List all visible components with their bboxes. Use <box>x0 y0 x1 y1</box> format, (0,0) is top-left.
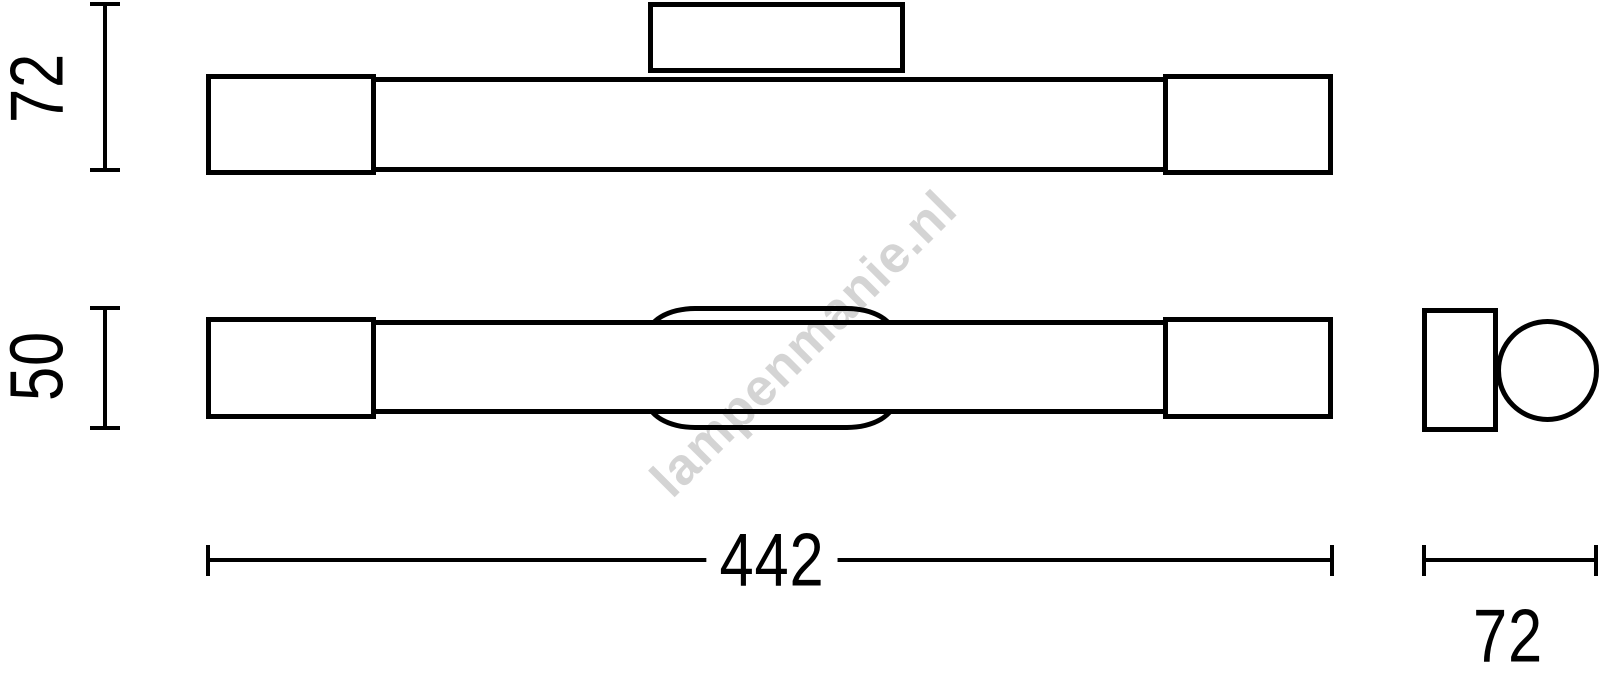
dim-tick-total-height-top <box>90 2 120 6</box>
dimension-drawing: 72 50 442 72 lampenmanie.nl <box>0 0 1600 689</box>
front-view-right-endcap <box>1163 317 1333 419</box>
side-view-cylinder <box>1496 319 1599 422</box>
dim-tick-depth-left <box>1422 545 1426 576</box>
dim-line-depth <box>1422 558 1598 562</box>
dim-label-total-width: 442 <box>706 519 837 602</box>
dim-line-total-height <box>103 2 107 172</box>
top-view-body <box>374 77 1171 172</box>
top-view-left-endcap <box>206 74 376 175</box>
dim-label-depth: 72 <box>1473 599 1543 674</box>
dim-tick-depth-right <box>1594 545 1598 576</box>
dim-label-body-height: 50 <box>0 331 75 401</box>
dim-label-total-height: 72 <box>0 53 75 123</box>
mounting-bracket <box>648 2 905 73</box>
dim-tick-total-height-bottom <box>90 168 120 172</box>
front-view-left-endcap <box>206 317 376 419</box>
top-view-right-endcap <box>1163 74 1333 175</box>
dim-tick-body-height-bottom <box>90 426 120 430</box>
dim-tick-body-height-top <box>90 306 120 310</box>
side-view-mount <box>1422 308 1498 432</box>
dim-tick-total-width-left <box>206 545 210 576</box>
dim-tick-total-width-right <box>1330 545 1334 576</box>
dim-line-body-height <box>103 306 107 430</box>
